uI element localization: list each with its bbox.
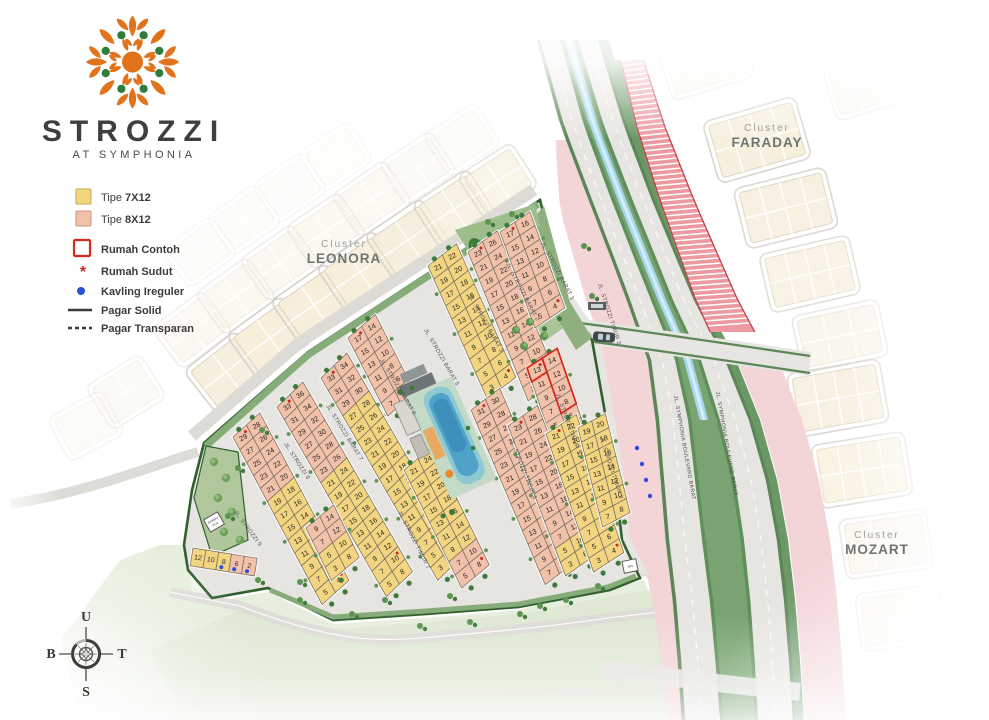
svg-text:T: T xyxy=(117,647,127,662)
svg-text:Tipe 8X12: Tipe 8X12 xyxy=(101,214,151,226)
svg-text:Rumah Contoh: Rumah Contoh xyxy=(101,244,180,256)
svg-text:Cluster: Cluster xyxy=(744,123,790,134)
svg-text:AT SYMPHONIA: AT SYMPHONIA xyxy=(73,149,196,161)
svg-text:S: S xyxy=(82,685,90,700)
svg-text:B: B xyxy=(46,647,55,662)
svg-text:Pagar Transparan: Pagar Transparan xyxy=(101,323,194,335)
svg-text:Cluster: Cluster xyxy=(854,530,900,541)
svg-text:U: U xyxy=(81,610,91,625)
svg-text:STROZZI: STROZZI xyxy=(42,115,226,148)
svg-text:Pagar Solid: Pagar Solid xyxy=(101,305,162,317)
svg-text:LEONORA: LEONORA xyxy=(307,251,382,266)
svg-text:Cluster: Cluster xyxy=(321,239,367,250)
svg-text:Rumah Sudut: Rumah Sudut xyxy=(101,266,173,278)
svg-text:Tipe 7X12: Tipe 7X12 xyxy=(101,192,151,204)
svg-text:MOZART: MOZART xyxy=(845,542,909,557)
svg-text:Kavling Ireguler: Kavling Ireguler xyxy=(101,286,185,298)
svg-text:*: * xyxy=(80,264,87,281)
svg-text:FARADAY: FARADAY xyxy=(731,135,802,150)
